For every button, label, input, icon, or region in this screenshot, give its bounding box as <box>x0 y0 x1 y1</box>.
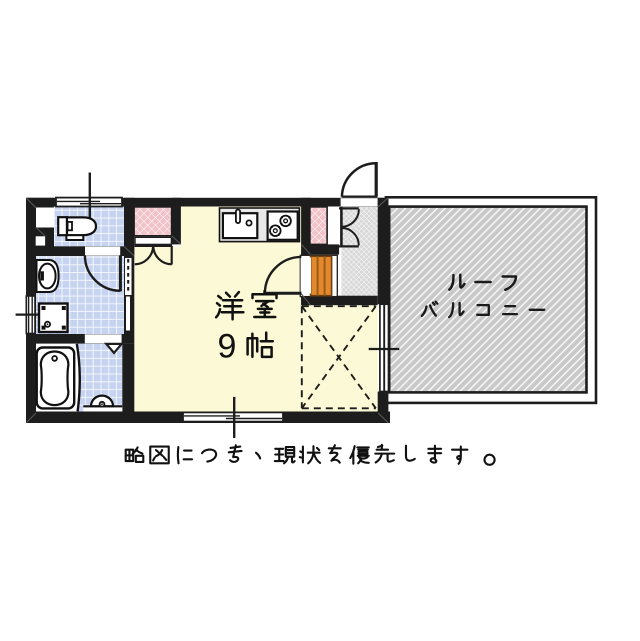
svg-text:9: 9 <box>218 328 237 366</box>
